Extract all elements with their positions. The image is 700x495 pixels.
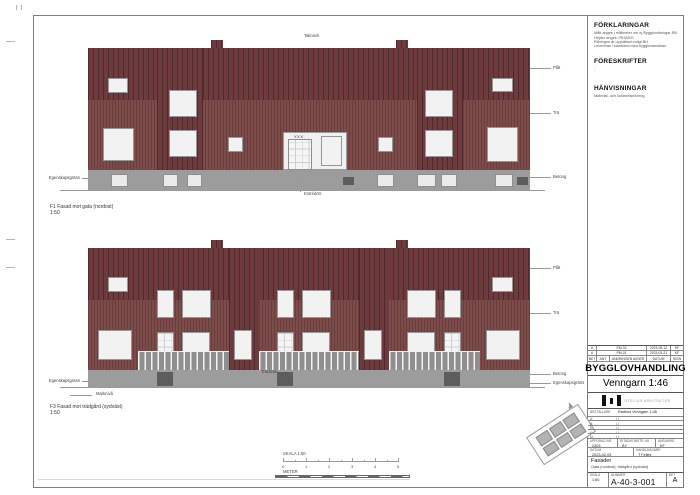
facade-base: [88, 170, 530, 190]
hanvisningar-heading: HÄNVISNINGAR: [594, 85, 647, 92]
meta-value: 2023-02-03: [588, 452, 633, 456]
material-label: Trä: [553, 111, 559, 115]
revision-header-cell: DATUM: [647, 356, 671, 360]
scalebar-tick: [375, 458, 376, 462]
chimney: [211, 240, 223, 248]
annotation-note: Entrédörr: [304, 192, 321, 196]
facade-base: [88, 370, 530, 387]
note-line: Material- och kulörbeskrivning: [594, 94, 680, 99]
info-label: E:: [588, 426, 614, 429]
chimney: [211, 40, 223, 48]
scalebar-minor-tick: [295, 460, 296, 462]
material-label: Betong: [553, 175, 566, 179]
window: [364, 330, 382, 360]
revision-date: 2023-05-12: [647, 346, 671, 350]
property-line-label: Egenskapsgräns: [30, 176, 80, 180]
window: [234, 330, 252, 360]
scalebar-minor-tick: [318, 460, 319, 462]
info-label: B:: [588, 421, 614, 424]
scalebar-number: 4: [374, 464, 376, 469]
leader-line: [530, 313, 551, 314]
window: [492, 78, 513, 92]
scalebar-tick: [352, 458, 353, 462]
revision-header-cell: SIGN: [671, 356, 683, 360]
basement-window: [417, 174, 436, 187]
railing: [138, 351, 229, 370]
window: [425, 90, 453, 117]
ground-line: [60, 190, 545, 191]
scalebar-number: 2: [328, 464, 330, 469]
property-line-label: Egenskapsgräns: [30, 379, 80, 383]
basement-opening: [277, 372, 293, 386]
facade-gable: [88, 48, 530, 100]
railing: [389, 351, 480, 370]
scalebar-tick: [398, 458, 399, 462]
window: [157, 290, 174, 318]
scalebar-title: SKALA 1:50: [283, 452, 306, 456]
drawing-content-cell: Fasader Gata (nordost), trädgård (sydväs…: [588, 457, 683, 473]
logo-bar: [602, 395, 606, 406]
window: [407, 290, 436, 318]
material-label: Egenskapsgräns: [553, 381, 584, 385]
info-row: BESTÄLLARE Radhus Venngarn 1:46: [588, 409, 683, 417]
window: [444, 290, 461, 318]
drawing-sheet: XXXPlåtTräBetongEgenskapsgränsEntrédörrT…: [0, 0, 700, 495]
window: [103, 128, 134, 161]
window: [108, 277, 128, 292]
entrance-sidelight-window: [321, 136, 342, 166]
revision-header-cell: ÄNDRINGEN AVSER: [610, 356, 647, 360]
info-label: A:: [588, 417, 614, 420]
house-number-sign: XXX: [294, 134, 304, 139]
revision-bet: A: [588, 351, 597, 355]
leader-line: [70, 395, 92, 396]
title-block: A PM-02 2023-05-12 KF A PM-01 2023-03-21…: [588, 345, 683, 487]
material-label: Betong: [553, 372, 566, 376]
leader-line: [530, 113, 551, 114]
scalebar-tick: [329, 458, 330, 462]
revision-letter: A: [667, 477, 683, 484]
scalebar-segments: [275, 475, 410, 478]
scalebar-minor-tick: [387, 460, 388, 462]
scalebar-tick: [306, 458, 307, 462]
drawing-content-subtitle: Gata (nordost), trädgård (sydväst): [591, 465, 683, 469]
revision-ant: PM-02: [597, 346, 647, 350]
material-label: Plåt: [553, 66, 560, 70]
note-line: Levereras i samband med bygglovansökan: [594, 44, 680, 49]
window: [425, 130, 453, 157]
leader-line: [82, 178, 88, 179]
leader-line: [530, 374, 551, 375]
window: [486, 330, 520, 360]
info-value: Radhus Venngarn 1:46: [614, 409, 657, 416]
revision-header-cell: BET: [588, 356, 597, 360]
revision-ant: PM-01: [597, 351, 647, 355]
elevation-scale: 1:50: [50, 211, 60, 216]
architect-logo: OTELIUS ARKITEKTER: [588, 393, 683, 409]
leader-line: [82, 381, 88, 382]
annotation-note: Taknock: [304, 34, 319, 38]
info-label: K:: [588, 430, 614, 433]
foreskrifter-heading: FÖRESKRIFTER: [594, 58, 647, 65]
firm-name: OTELIUS ARKITEKTER: [625, 399, 671, 403]
scalebar-number: 3: [351, 464, 353, 469]
material-label: Plåt: [553, 266, 560, 270]
revision-bet: A: [588, 346, 597, 350]
leader-line: [530, 268, 551, 269]
info-label: BESTÄLLARE: [588, 409, 614, 416]
scalebar-tick: [283, 458, 284, 462]
material-label: Trä: [553, 311, 559, 315]
scale-value: 1:50: [588, 477, 608, 482]
info-value: (-): [614, 430, 619, 433]
window: [277, 290, 294, 318]
window: [169, 130, 197, 157]
window: [492, 277, 513, 292]
info-value: (-): [614, 434, 619, 437]
drawing-number-row: SKALA1:50 NUMMERA-40-3-001 BETA: [588, 473, 683, 488]
scalebar-number: 1: [305, 464, 307, 469]
window: [378, 137, 393, 152]
window: [487, 127, 518, 162]
leader-line: [530, 177, 551, 178]
annotation-note: Träräcke: [261, 370, 277, 374]
entrance-door: [288, 139, 312, 170]
fold-line: [38, 479, 410, 480]
railing: [259, 351, 359, 370]
info-label: M:: [588, 434, 614, 437]
basement-window: [495, 174, 513, 187]
basement-opening: [444, 372, 460, 386]
note-line: Mått anges i millimeter om ej Bygglovrit…: [594, 31, 680, 36]
project-meta-row: UPPDRAG.NR2303 RITAD/KONSTR. AVÄY ANSVAR…: [588, 439, 683, 448]
drawing-content-title: Fasader: [591, 458, 683, 464]
meta-value: 2303: [588, 443, 617, 447]
basement-window: [441, 174, 457, 187]
utility-box: [517, 177, 528, 185]
project-meta-row: DATUM2023-02-03 HANDLÄGGARET Felles: [588, 448, 683, 457]
basement-window: [187, 174, 202, 187]
scalebar-minor-tick: [341, 460, 342, 462]
scalebar-number: 5: [397, 464, 399, 469]
document-status: BYGGLOVHANDLING: [588, 362, 683, 376]
revision-sign: KF: [671, 351, 683, 355]
logo-bar: [610, 398, 614, 404]
site-boundary: [526, 404, 596, 465]
window: [108, 78, 128, 93]
meta-value: ÄY: [618, 443, 655, 447]
revision-sign: KF: [671, 346, 683, 350]
revision-date: 2023-03-21: [647, 351, 671, 355]
chimney: [396, 40, 408, 48]
ground-line: [60, 387, 545, 388]
meta-value: KF: [656, 443, 683, 447]
meta-value: T Felles: [634, 452, 683, 456]
chimney: [396, 240, 408, 248]
basement-window: [163, 174, 178, 187]
window: [98, 330, 132, 360]
revision-header-cell: ANT: [597, 356, 610, 360]
leader-line: [300, 171, 301, 192]
basement-window: [377, 174, 394, 187]
basement-opening: [157, 372, 173, 386]
window: [228, 137, 243, 152]
leader-line: [530, 68, 551, 69]
window: [302, 290, 331, 318]
forklaringar-heading: FÖRKLARINGAR: [594, 22, 649, 29]
leader-line: [530, 383, 551, 384]
annotation-note: Marknivå: [96, 392, 113, 396]
property-designation: Venngarn 1:46: [588, 376, 683, 394]
elevation-scale: 1:50: [50, 411, 60, 416]
window: [169, 90, 197, 117]
info-value: (-): [614, 421, 619, 424]
window: [182, 290, 211, 318]
elevation-label: F3 Fasad mot trädgård (sydväst): [50, 405, 123, 410]
utility-box: [343, 177, 354, 185]
logo-bar: [617, 395, 621, 406]
basement-window: [111, 174, 128, 187]
leader-line: [232, 373, 259, 374]
info-value: (-): [614, 417, 619, 420]
scalebar-minor-tick: [364, 460, 365, 462]
drawing-number: A-40-3-001: [609, 477, 666, 487]
info-value: (-): [614, 426, 619, 429]
note-line: -: [594, 68, 680, 73]
